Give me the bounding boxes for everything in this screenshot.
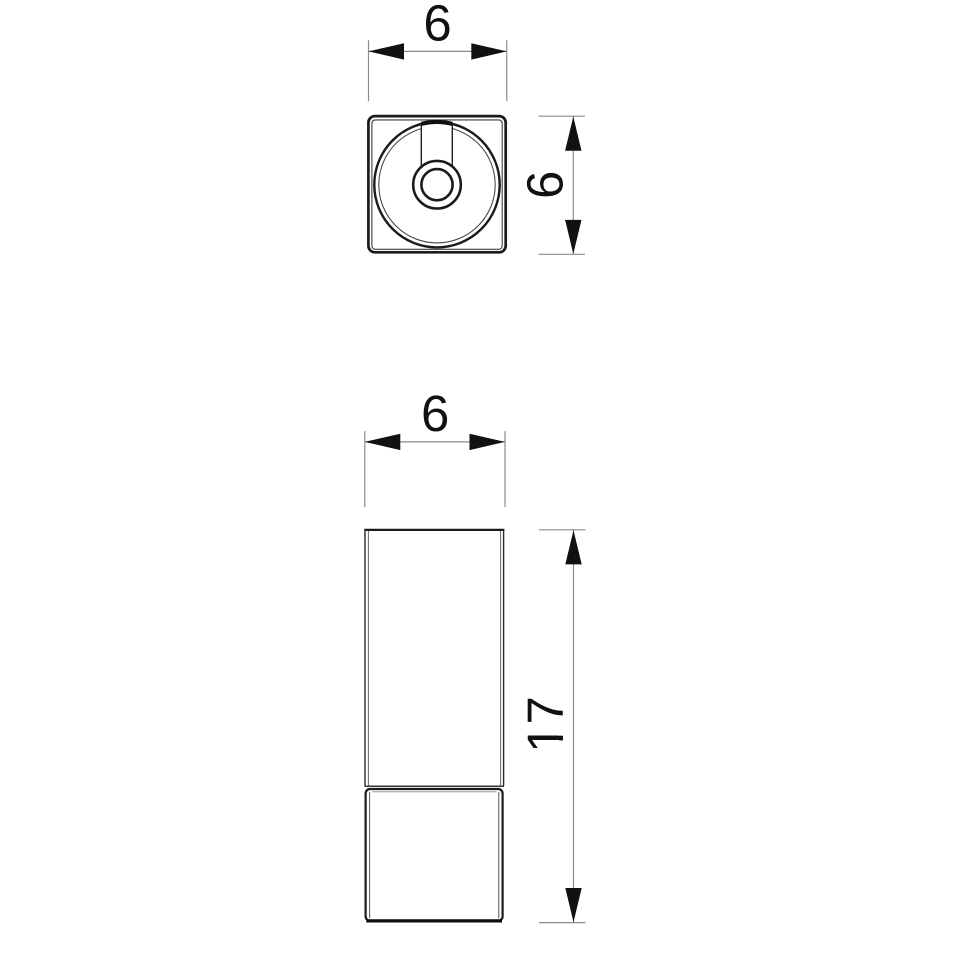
svg-text:6: 6 xyxy=(423,0,451,52)
svg-text:6: 6 xyxy=(516,171,573,199)
svg-text:6: 6 xyxy=(421,385,449,442)
svg-text:17: 17 xyxy=(517,696,574,753)
